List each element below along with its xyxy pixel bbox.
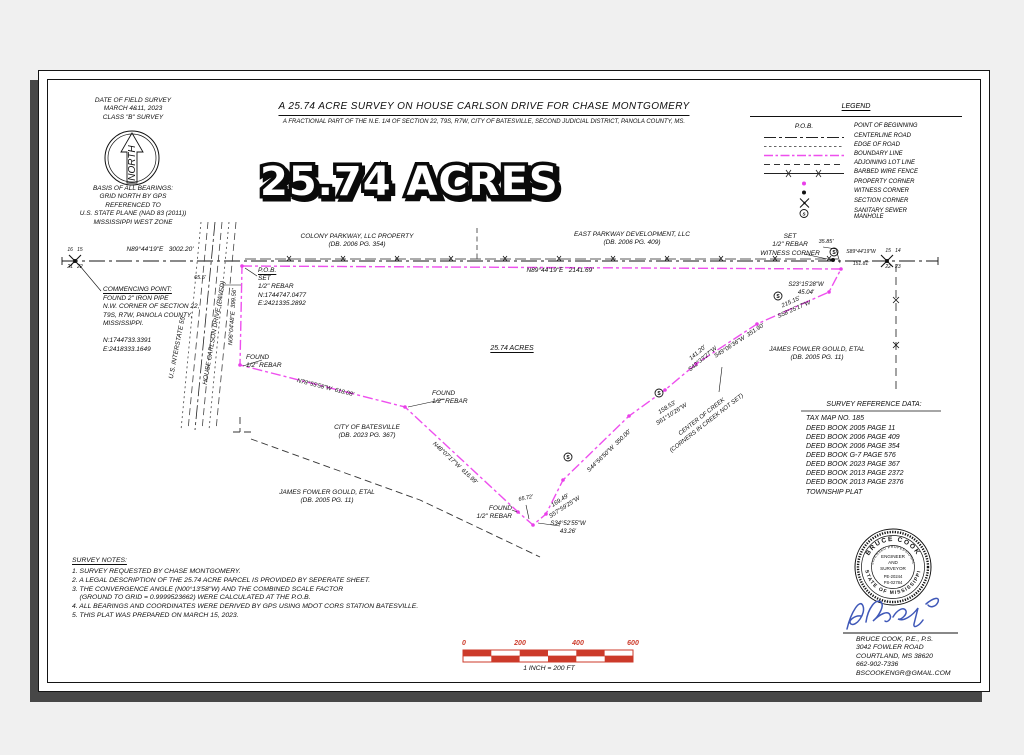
pob-block: SET 1/2" REBAR N:1744747.0477 E:2421335.… [258, 275, 306, 309]
owner-colony-parkway: COLONY PARKWAY, LLC PROPERTY (DB. 2006 P… [301, 233, 414, 250]
svg-text:PE-20244: PE-20244 [884, 574, 903, 579]
legend-row-witness-corner: WITNESS CORNER [748, 188, 964, 198]
svg-text:PS-02784: PS-02784 [884, 580, 903, 585]
scale-tick-400: 400 [572, 639, 584, 648]
scale-tick-200: 200 [514, 639, 526, 648]
reference-township-plat: TOWNSHIP PLAT [806, 488, 862, 497]
surveyor-contact-block: BRUCE COOK, P.E., P.S. 3042 FOWLER ROAD … [856, 636, 951, 678]
survey-note-1: 1. SURVEY REQUESTED BY CHASE MONTGOMERY. [72, 568, 241, 576]
north-arrow-icon: NORTH [105, 131, 159, 185]
legend-label: BARBED WIRE FENCE [854, 169, 918, 175]
dimension-151-81: 151.81' [853, 261, 869, 268]
basis-of-bearings-block: BASIS OF ALL BEARINGS: GRID NORTH BY GPS… [80, 185, 187, 227]
survey-notes-title: SURVEY NOTES: [72, 557, 127, 566]
surveyor-seal: BRUCE COOK LICENSED PROFESSIONAL STATE O… [855, 529, 931, 605]
owner-gould-east: JAMES FOWLER GOULD, ETAL (DB. 2005 PG. 1… [769, 346, 865, 363]
legend-label: WITNESS CORNER [854, 188, 909, 194]
reference-tax-map: TAX MAP NO. 185 [806, 414, 864, 423]
commencing-point-title: COMMENCING POINT: [103, 286, 172, 294]
survey-note-3: 3. THE CONVERGENCE ANGLE (N00°13'58"W) A… [72, 586, 343, 602]
survey-note-5: 5. THIS PLAT WAS PREPARED ON MARCH 15, 2… [72, 612, 239, 620]
legend-label: EDGE OF ROAD [854, 142, 900, 148]
legend-title: LEGEND [842, 103, 871, 110]
scale-bar [463, 650, 633, 662]
page-title: A 25.74 ACRE SURVEY ON HOUSE CARLSON DRI… [278, 100, 689, 116]
field-survey-date-block: DATE OF FIELD SURVEY MARCH 4&11, 2023 CL… [95, 97, 171, 122]
reference-deed-books: DEED BOOK 2005 PAGE 11 DEED BOOK 2006 PA… [806, 424, 904, 487]
svg-text:NORTH: NORTH [127, 145, 138, 181]
bearing-s89: S89°44'19"W [846, 249, 875, 256]
legend-label: ADJOINING LOT LINE [854, 160, 915, 166]
pob-symbol: P.O.B. [762, 123, 846, 130]
found-rebar-note-south: FOUND 1/2" REBAR [462, 505, 512, 522]
bearing-s3452: S34°52'55"W 43.26' [550, 521, 585, 537]
legend-row-barbed: BARBED WIRE FENCE [748, 169, 964, 179]
section-numbers-ne-top: 15 14 [885, 248, 900, 255]
owner-city-of-batesville: CITY OF BATESVILLE (DB. 2023 PG. 367) [334, 424, 400, 441]
plat-page: S S S S NORTH 25.74 ACRES 25.74 ACRES [0, 0, 1024, 755]
section-numbers-ne-bottom: 22 23 [885, 264, 900, 271]
legend-row-property-corner: PROPERTY CORNER [748, 179, 964, 189]
bearing-3002: N89°44'19"E 3002.20' [126, 246, 193, 254]
reference-data-title: SURVEY REFERENCE DATA: [806, 400, 942, 409]
section-numbers-nw-bottom: 21 22 [67, 264, 82, 271]
leader-lines [80, 247, 840, 526]
page-subtitle: A FRACTIONAL PART OF THE N.E. 1/4 OF SEC… [283, 119, 685, 127]
svg-text:ENGINEER: ENGINEER [881, 554, 906, 559]
legend-label: POINT OF BEGINNING [854, 123, 918, 129]
legend-rule [750, 116, 962, 117]
legend-row-manhole: S SANITARY SEWER MANHOLE [748, 208, 964, 224]
legend-row-section-corner: SECTION CORNER [748, 198, 964, 208]
scale-caption: 1 INCH = 200 FT [523, 665, 575, 674]
owner-gould-southwest: JAMES FOWLER GOULD, ETAL (DB. 2005 PG. 1… [279, 489, 375, 506]
survey-note-2: 2. A LEGAL DESCRIPTION OF THE 25.74 ACRE… [72, 577, 370, 585]
dimension-65-5: 65.5' [194, 275, 206, 282]
bearing-2141: N89°44'19"E 2141.69' [526, 267, 593, 275]
found-rebar-note-middle: FOUND 1/2" REBAR [432, 390, 468, 407]
acreage-label: 25.74 ACRES [490, 344, 533, 353]
scale-tick-0: 0 [462, 639, 466, 648]
found-rebar-note-north: FOUND 1/2" REBAR [246, 354, 282, 371]
section-numbers-nw-top: 16 15 [67, 247, 82, 254]
svg-text:AND: AND [888, 560, 898, 565]
scale-tick-600: 600 [627, 639, 639, 648]
legend-label: PROPERTY CORNER [854, 179, 914, 185]
survey-note-4: 4. ALL BEARINGS AND COORDINATES WERE DER… [72, 603, 418, 611]
property-corner-dots [238, 264, 843, 527]
legend-label: CENTERLINE ROAD [854, 133, 911, 139]
sanitary-sewer-manhole-icon: S [762, 208, 846, 221]
svg-text:SURVEYOR: SURVEYOR [880, 566, 906, 571]
legend-row-adjoining: ADJOINING LOT LINE [748, 160, 964, 170]
legend-label: SECTION CORNER [854, 198, 908, 204]
boundary-line [240, 266, 841, 525]
owner-east-parkway: EAST PARKWAY DEVELOPMENT, LLC (DB. 2006 … [574, 231, 690, 248]
legend-label: BOUNDARY LINE [854, 151, 903, 157]
acres-big-label: 25.74 ACRES [260, 159, 559, 205]
legend-label: SANITARY SEWER MANHOLE [854, 208, 907, 221]
dimension-35-85: 35.85' [819, 239, 834, 246]
witness-corner-note: SET 1/2" REBAR WITNESS CORNER [760, 233, 820, 258]
svg-text:S: S [802, 211, 805, 216]
legend-row-pob: P.O.B. POINT OF BEGINNING [748, 123, 964, 133]
